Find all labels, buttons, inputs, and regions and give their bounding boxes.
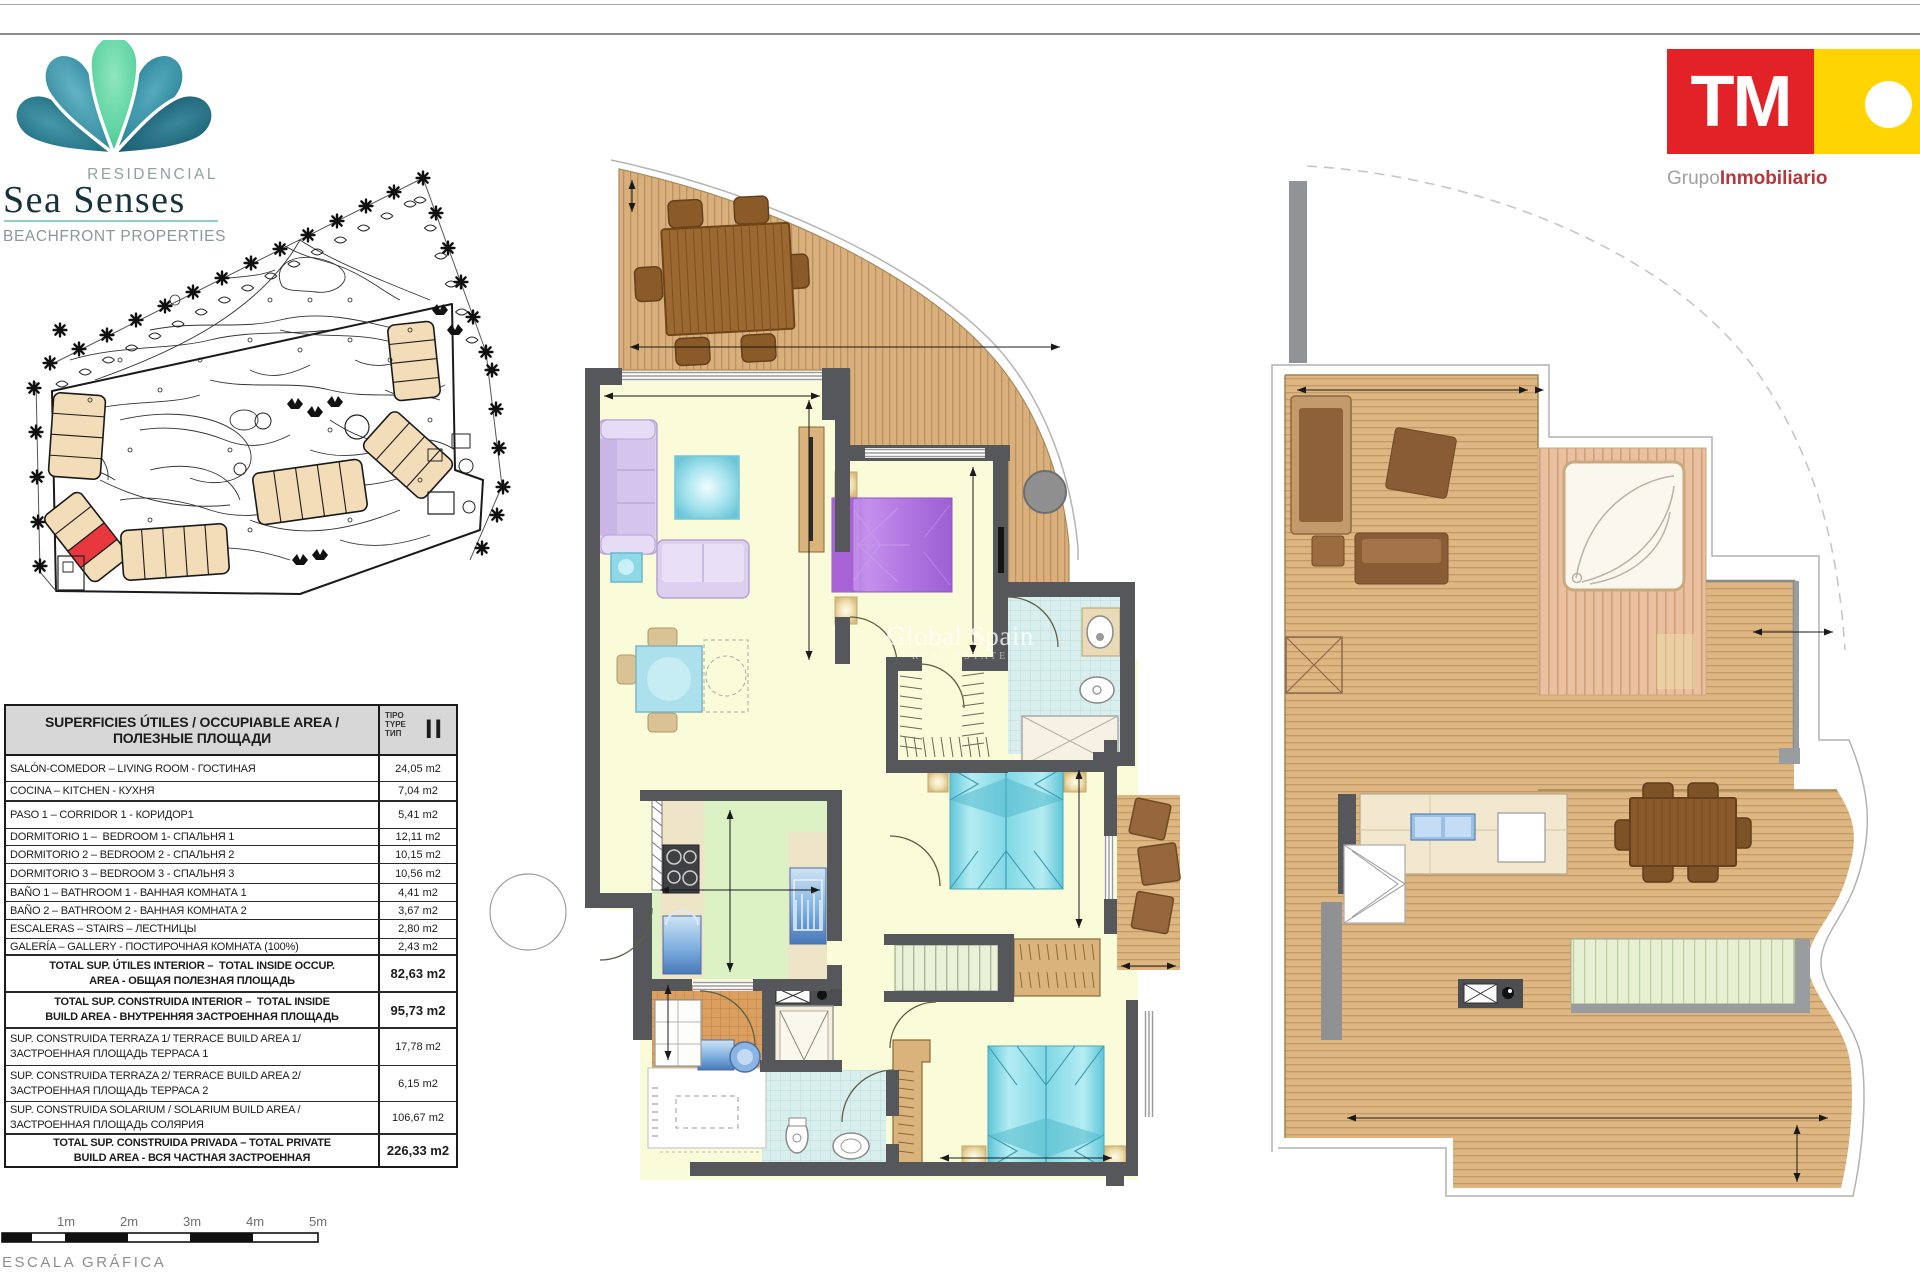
svg-text:ESCALA GRÁFICA: ESCALA GRÁFICA [2, 1254, 166, 1271]
svg-text:5m: 5m [309, 1214, 327, 1229]
svg-text:4m: 4m [246, 1214, 264, 1229]
svg-text:1m: 1m [57, 1214, 75, 1229]
svg-text:3m: 3m [183, 1214, 201, 1229]
svg-text:2m: 2m [120, 1214, 138, 1229]
